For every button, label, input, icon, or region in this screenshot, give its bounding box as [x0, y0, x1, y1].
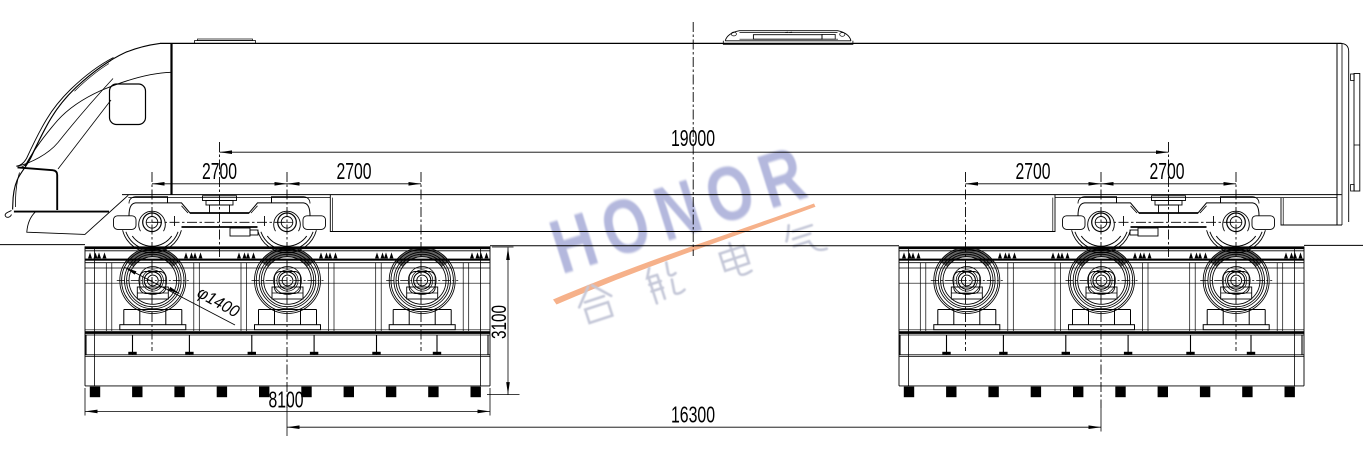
- svg-text:2700: 2700: [337, 159, 372, 185]
- svg-text:8100: 8100: [269, 388, 304, 414]
- svg-text:2700: 2700: [202, 159, 237, 185]
- svg-text:3100: 3100: [487, 305, 511, 339]
- svg-text:2700: 2700: [1150, 159, 1185, 185]
- svg-text:16300: 16300: [671, 403, 715, 429]
- svg-text:2700: 2700: [1016, 159, 1051, 185]
- svg-text:19000: 19000: [671, 126, 715, 152]
